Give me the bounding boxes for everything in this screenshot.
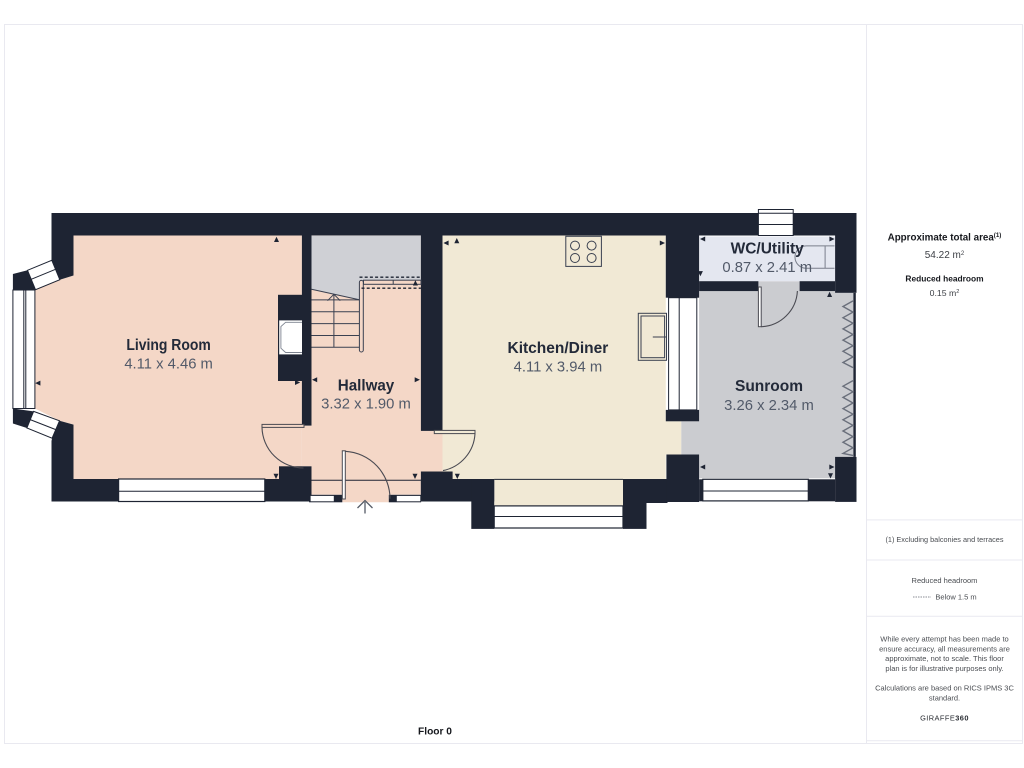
svg-text:Hallway: Hallway [338,378,395,395]
svg-text:0.15 m2: 0.15 m2 [930,288,960,298]
svg-text:Below 1.5 m: Below 1.5 m [935,593,976,602]
svg-text:approximate, not to scale. Thi: approximate, not to scale. This floor [885,654,1004,663]
svg-text:Reduced headroom: Reduced headroom [905,274,983,284]
svg-text:3.32 x 1.90 m: 3.32 x 1.90 m [321,396,411,412]
svg-text:Living Room: Living Room [126,337,211,354]
svg-text:Reduced headroom: Reduced headroom [912,576,978,585]
svg-text:54.22 m2: 54.22 m2 [925,250,965,261]
svg-text:0.87 x 2.41 m: 0.87 x 2.41 m [722,260,812,276]
svg-text:GIRAFFE360: GIRAFFE360 [920,714,969,723]
svg-text:plan is for illustrative purpo: plan is for illustrative purposes only. [885,664,1003,673]
svg-text:4.11 x 3.94 m: 4.11 x 3.94 m [514,359,603,375]
svg-text:WC/Utility: WC/Utility [731,241,805,258]
svg-text:(1) Excluding balconies and te: (1) Excluding balconies and terraces [885,535,1003,544]
svg-text:4.11 x 4.46 m: 4.11 x 4.46 m [124,356,213,372]
svg-text:Sunroom: Sunroom [735,378,803,395]
svg-text:Floor 0: Floor 0 [418,727,452,738]
svg-text:Calculations are based on RICS: Calculations are based on RICS IPMS 3C [875,684,1014,693]
svg-text:standard.: standard. [929,693,960,702]
svg-text:ensure accuracy, all measureme: ensure accuracy, all measurements are [879,644,1010,653]
svg-text:While every attempt has been m: While every attempt has been made to [880,635,1008,644]
svg-text:Kitchen/Diner: Kitchen/Diner [508,340,609,357]
svg-text:Approximate total area(1): Approximate total area(1) [888,232,1002,244]
svg-text:3.26 x 2.34 m: 3.26 x 2.34 m [724,398,814,414]
